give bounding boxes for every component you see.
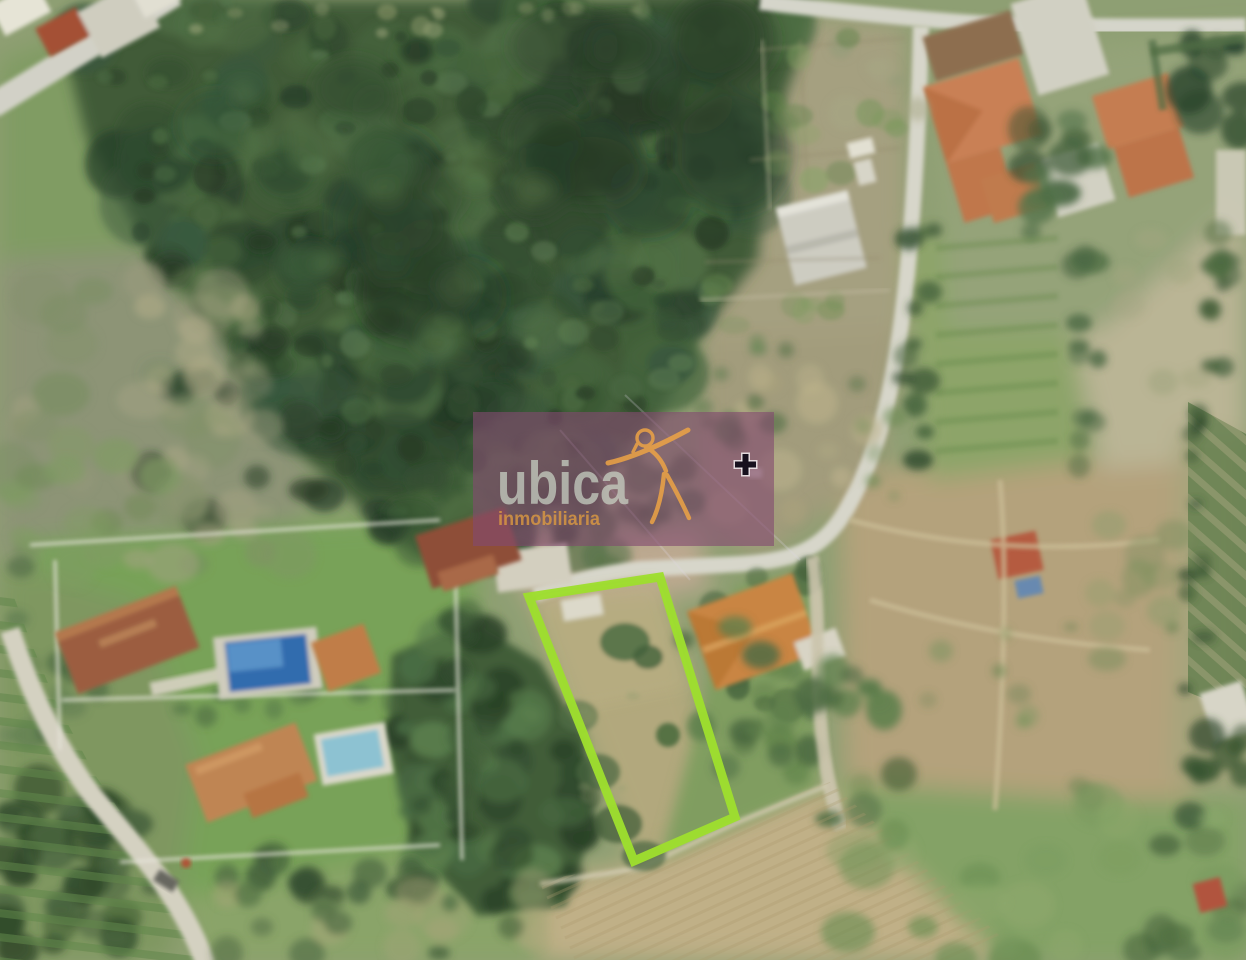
svg-text:inmobiliaria: inmobiliaria [498,509,600,530]
svg-text:ubica: ubica [497,450,629,517]
